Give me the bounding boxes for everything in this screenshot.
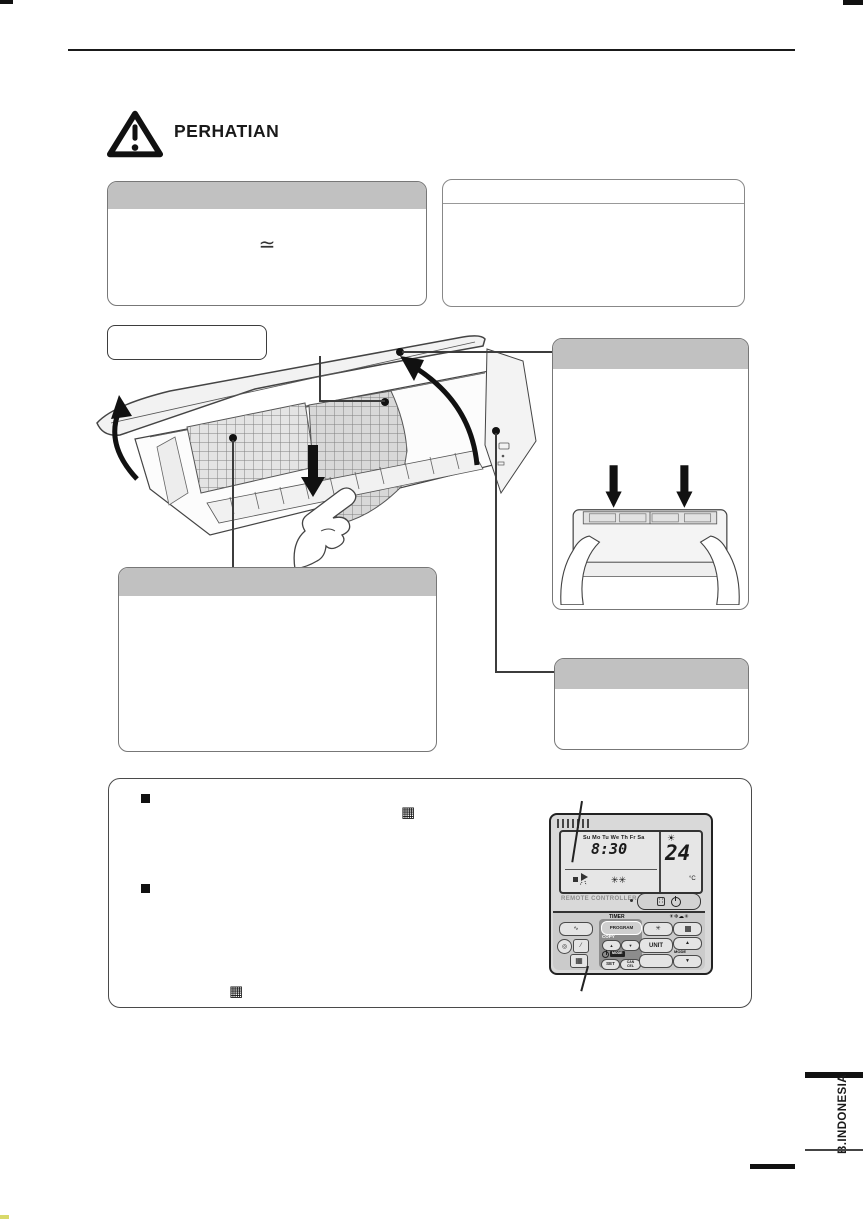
up-arrow-icon: ▲ — [610, 944, 614, 948]
lcd-divider — [659, 832, 661, 892]
caution-box-right-header — [443, 180, 744, 204]
caution-heading: PERHATIAN — [106, 108, 279, 160]
mode-square-icon — [685, 926, 691, 932]
cancel-button: CAN CEL — [620, 959, 641, 970]
connector-line — [319, 400, 385, 402]
mode-button — [673, 922, 702, 936]
power-icon — [671, 897, 681, 907]
connector-line — [495, 433, 497, 673]
remote-lcd: Su Mo Tu We Th Fr Sa 8:30 ✳✳ ☀ 24 °C — [559, 830, 703, 894]
set-label: SET — [606, 962, 615, 967]
bullet-square-icon — [141, 884, 150, 893]
remote-name-label: REMOTE CONTROLLER — [561, 896, 637, 902]
copy-label: COPY — [602, 934, 615, 939]
filter-sign-grid-icon: ▦ — [401, 805, 415, 820]
lcd-temperature: 24 — [665, 841, 690, 865]
temp-down-button: ▼ — [673, 955, 702, 968]
filter-instruction-box-header — [119, 568, 436, 596]
connector-line — [232, 440, 234, 568]
right-mode-label: MODE — [674, 949, 686, 954]
caution-box-left: ≃ — [107, 181, 427, 306]
warning-triangle-icon — [106, 108, 164, 160]
program-button: PROGRAM — [601, 921, 642, 935]
filter-grid-icon: ▦ — [575, 957, 583, 965]
bullet-square-icon — [141, 794, 150, 803]
filter-instruction-box — [118, 567, 437, 752]
close-panel-box-header — [553, 339, 748, 369]
unit-button: UNIT — [639, 938, 673, 953]
vane-button: ◎ — [557, 939, 572, 954]
remote-keypad: TIMER ☀❄☁✳ ∿ ✳ PROGRAM COPY ▲ ▼ — [553, 911, 705, 970]
program-label: PROGRAM — [610, 926, 634, 931]
service-button: ⁄ — [573, 939, 589, 953]
manual-page: PERHATIAN ≃ — [0, 0, 863, 1220]
ac-unit-diagram — [55, 325, 555, 570]
up-arrow-icon: ▲ — [685, 941, 690, 946]
fan-speed-button: ✳ — [643, 922, 673, 936]
language-tab-label: B.INDONESIA — [837, 1074, 849, 1154]
timer-down-button: ▼ — [621, 940, 640, 951]
filter-reset-button: ▦ — [570, 954, 588, 968]
timer-mode-label: MODE — [610, 951, 625, 957]
filter-sign-grid-icon: ▦ — [229, 984, 243, 999]
ac-power-symbol: ≃ — [108, 232, 426, 257]
caution-box-right — [442, 179, 745, 307]
close-panel-illustration — [559, 461, 741, 605]
down-arrow-icon: ▼ — [685, 959, 690, 964]
close-panel-box — [552, 338, 749, 610]
indicator-dot — [630, 899, 633, 902]
side-panel-box-header — [555, 659, 748, 689]
header-rule — [68, 49, 795, 51]
remote-controller-illustration: Su Mo Tu We Th Fr Sa 8:30 ✳✳ ☀ 24 °C REM… — [549, 813, 713, 975]
onoff-button: ∷ — [637, 893, 701, 910]
lcd-time: 8:30 — [591, 840, 627, 858]
lcd-filter-sign-icon — [573, 872, 589, 886]
scan-mark-top-right — [843, 0, 863, 5]
connector-line — [402, 351, 553, 353]
target-icon: ◎ — [562, 944, 567, 950]
page-footer-bar — [750, 1164, 795, 1169]
remove-filter-arrow — [308, 445, 318, 477]
caution-label: PERHATIAN — [174, 121, 279, 148]
caution-box-left-header — [108, 182, 426, 209]
cancel-label: CAN CEL — [625, 961, 637, 968]
down-arrow-icon: ▼ — [629, 944, 633, 948]
language-tab: B.INDONESIA — [824, 1078, 862, 1150]
wave-icon: ∿ — [573, 926, 578, 932]
lcd-status-icons: ✳✳ — [611, 876, 626, 886]
connector-line — [495, 671, 556, 673]
clock-set-icon: ∷ — [657, 897, 665, 906]
diagram-callout-label-box — [107, 325, 267, 360]
swing-button: ∿ — [559, 922, 593, 936]
notes-box: ▦ ▦ Su Mo Tu We Th Fr Sa 8:30 ✳✳ ☀ 24 — [108, 778, 752, 1008]
scan-mark-top-left — [0, 0, 13, 4]
louver-button — [639, 954, 673, 968]
fan-icon: ✳ — [655, 926, 660, 932]
mini-power-icon — [602, 951, 609, 958]
connector-line — [319, 356, 321, 401]
lcd-midline — [565, 869, 657, 870]
slash-icon: ⁄ — [580, 943, 581, 949]
lcd-temperature-unit: °C — [689, 876, 696, 882]
remote-vents — [557, 819, 591, 828]
language-tab-bottom-line — [805, 1149, 863, 1151]
side-panel-box — [554, 658, 749, 750]
scan-mark-bottom-left — [0, 1215, 9, 1219]
unit-label: UNIT — [649, 943, 663, 949]
mode-icons-row: ☀❄☁✳ — [669, 914, 689, 920]
timer-button-group: PROGRAM COPY ▲ ▼ MODE SET CAN CEL — [599, 919, 642, 968]
set-button: SET — [601, 959, 620, 970]
